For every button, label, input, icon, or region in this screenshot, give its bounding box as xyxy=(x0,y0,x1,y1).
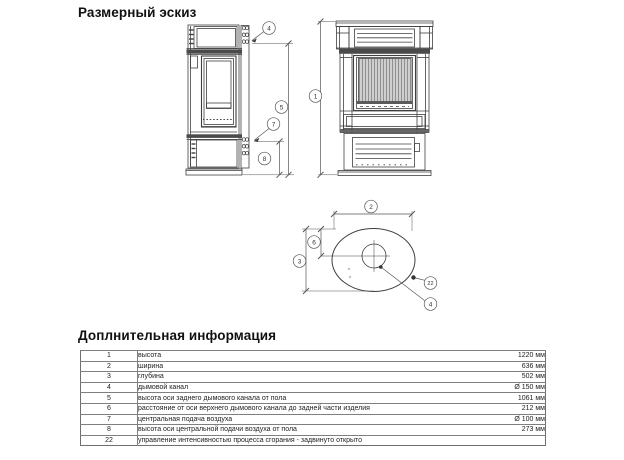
callout-7: 7 xyxy=(272,121,276,128)
table-row: 2 ширина 636 мм xyxy=(81,361,546,372)
row-value: Ø 150 мм xyxy=(467,382,546,393)
side-view-drawing xyxy=(186,25,249,175)
additional-info-table: 1 высота 1220 мм 2 ширина 636 мм 3 глуби… xyxy=(80,350,546,446)
table-row: 22 управление интенсивностью процесса сг… xyxy=(81,435,546,446)
row-description: ширина xyxy=(138,361,468,372)
callout-4-top: 4 xyxy=(429,301,433,308)
row-description: расстояние от оси верхнего дымового кана… xyxy=(138,403,468,414)
top-view-drawing xyxy=(321,229,416,292)
row-value: Ø 100 мм xyxy=(467,414,546,425)
callout-6: 6 xyxy=(312,239,316,246)
table-row: 6 расстояние от оси верхнего дымового ка… xyxy=(81,403,546,414)
row-value: 273 мм xyxy=(467,425,546,436)
row-value xyxy=(467,435,546,446)
row-number: 22 xyxy=(81,435,138,446)
row-value: 212 мм xyxy=(467,403,546,414)
row-description: глубина xyxy=(138,372,468,383)
row-number: 3 xyxy=(81,372,138,383)
table-row: 1 высота 1220 мм xyxy=(81,351,546,362)
row-value: 502 мм xyxy=(467,372,546,383)
row-number: 5 xyxy=(81,393,138,404)
callout-22: 22 xyxy=(427,281,433,287)
table-row: 5 высота оси заднего дымового канала от … xyxy=(81,393,546,404)
row-description: высота оси центральной подачи воздуха от… xyxy=(138,425,468,436)
row-number: 7 xyxy=(81,414,138,425)
row-description: высота xyxy=(138,351,468,362)
table-row: 4 дымовой канал Ø 150 мм xyxy=(81,382,546,393)
callout-5: 5 xyxy=(280,104,284,111)
row-value: 1220 мм xyxy=(467,351,546,362)
row-value: 636 мм xyxy=(467,361,546,372)
stove-glass-texture xyxy=(359,59,411,101)
top-view-dimensions xyxy=(293,200,437,310)
row-number: 6 xyxy=(81,403,138,414)
row-description: дымовой канал xyxy=(138,382,468,393)
callout-3: 3 xyxy=(298,258,302,265)
row-number: 2 xyxy=(81,361,138,372)
page-title-info: Доплнительная информация xyxy=(78,328,276,343)
row-description: управление интенсивностью процесса сгора… xyxy=(138,435,468,446)
table-row: 3 глубина 502 мм xyxy=(81,372,546,383)
callout-4-side: 4 xyxy=(267,25,271,32)
table-row: 7 центральная подача воздуха Ø 100 мм xyxy=(81,414,546,425)
row-number: 4 xyxy=(81,382,138,393)
callout-1: 1 xyxy=(314,93,318,100)
side-view-dimensions xyxy=(243,22,294,178)
datasheet-page: Размерный эскиз xyxy=(0,0,624,460)
row-value: 1061 мм xyxy=(467,393,546,404)
table-row: 8 высота оси центральной подачи воздуха … xyxy=(81,425,546,436)
callout-2: 2 xyxy=(369,204,373,211)
callout-8: 8 xyxy=(263,156,267,163)
row-number: 8 xyxy=(81,425,138,436)
row-number: 1 xyxy=(81,351,138,362)
row-description: центральная подача воздуха xyxy=(138,414,468,425)
dimensional-drawing: 4 5 7 8 xyxy=(0,0,624,340)
row-description: высота оси заднего дымового канала от по… xyxy=(138,393,468,404)
